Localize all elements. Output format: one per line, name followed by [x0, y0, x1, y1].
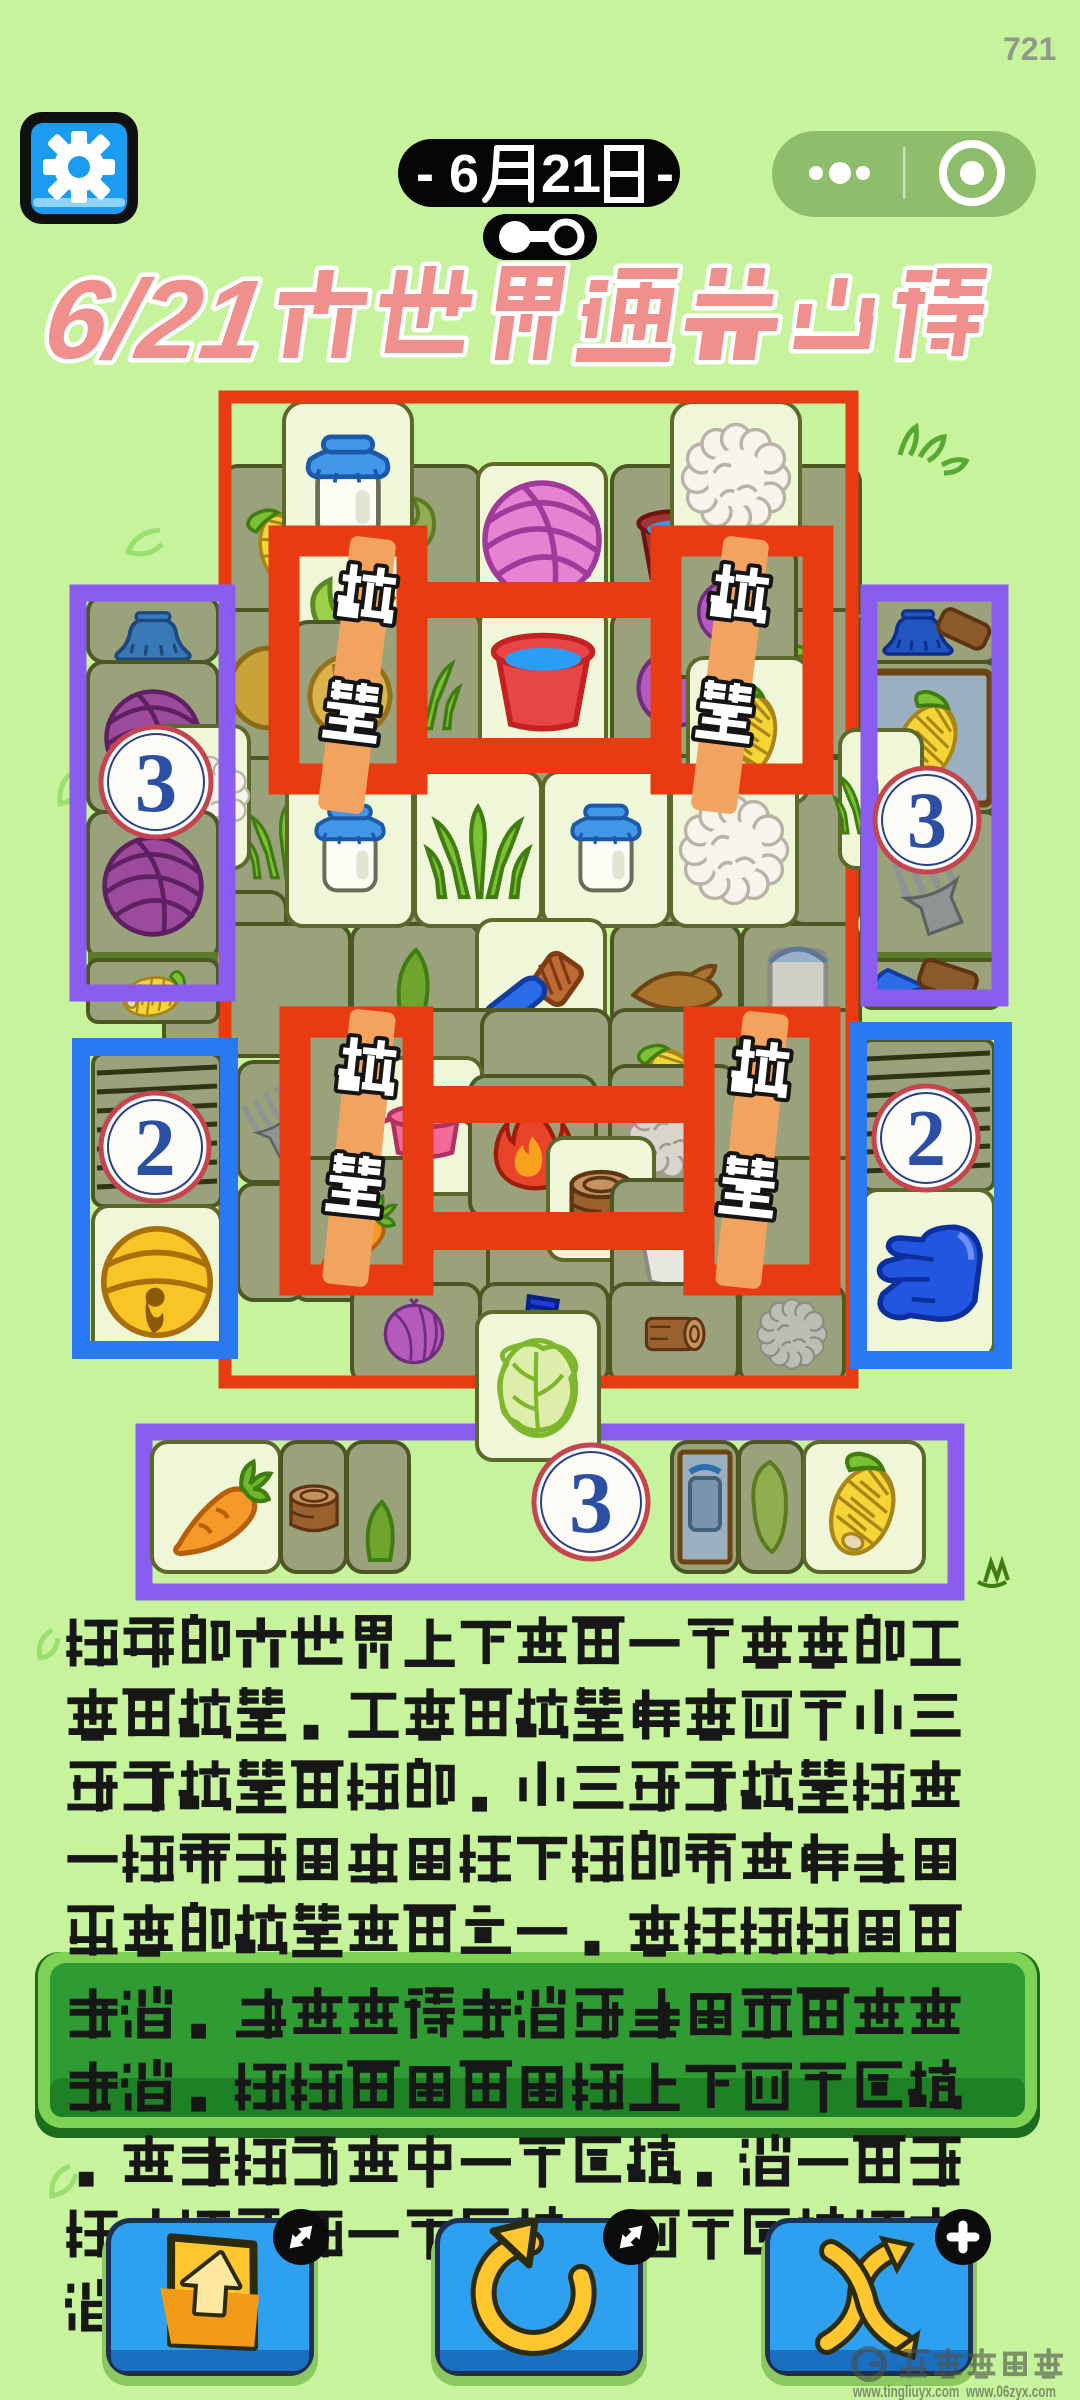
svg-text:www.tingliuyx.com www.06zyx.c: www.tingliuyx.com www.06zyx.com [852, 2382, 1056, 2400]
svg-text:6/21: 6/21 [37, 256, 273, 381]
svg-text:721: 721 [1003, 31, 1056, 67]
svg-text:3: 3 [135, 736, 178, 830]
svg-text:2: 2 [134, 1101, 176, 1193]
svg-text:-: - [656, 144, 674, 204]
svg-text:3: 3 [907, 777, 947, 865]
svg-text:- 6: - 6 [416, 144, 479, 204]
svg-text:2: 2 [906, 1095, 946, 1183]
svg-text:3: 3 [569, 1455, 613, 1552]
svg-text:21: 21 [541, 144, 601, 204]
